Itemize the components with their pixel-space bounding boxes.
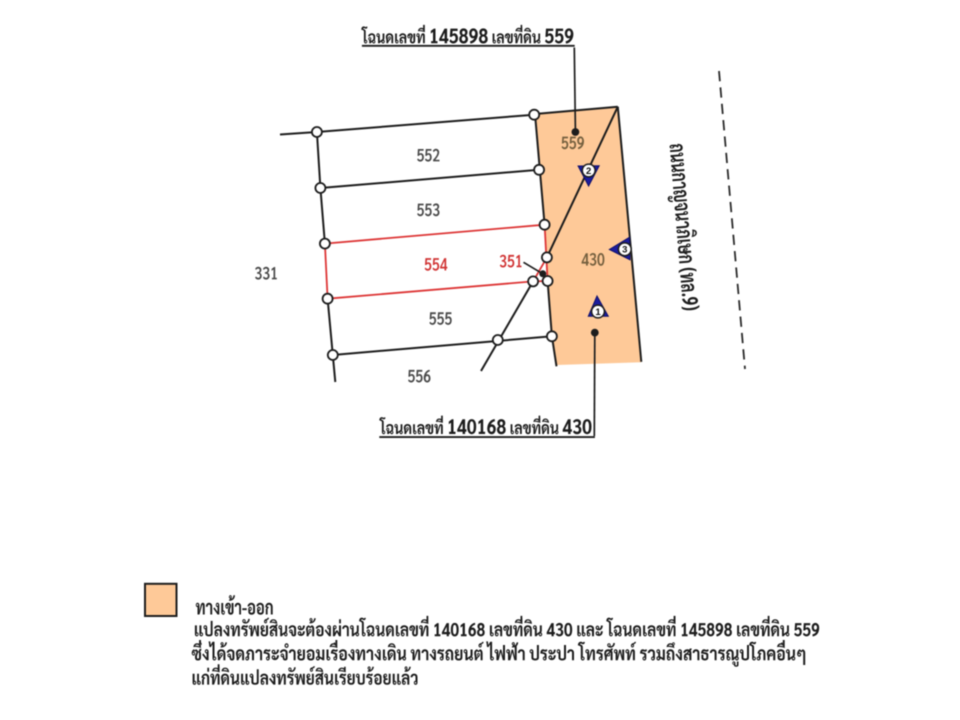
svg-text:2: 2 — [586, 166, 591, 177]
svg-text:3: 3 — [622, 245, 627, 256]
svg-text:1: 1 — [595, 307, 601, 318]
